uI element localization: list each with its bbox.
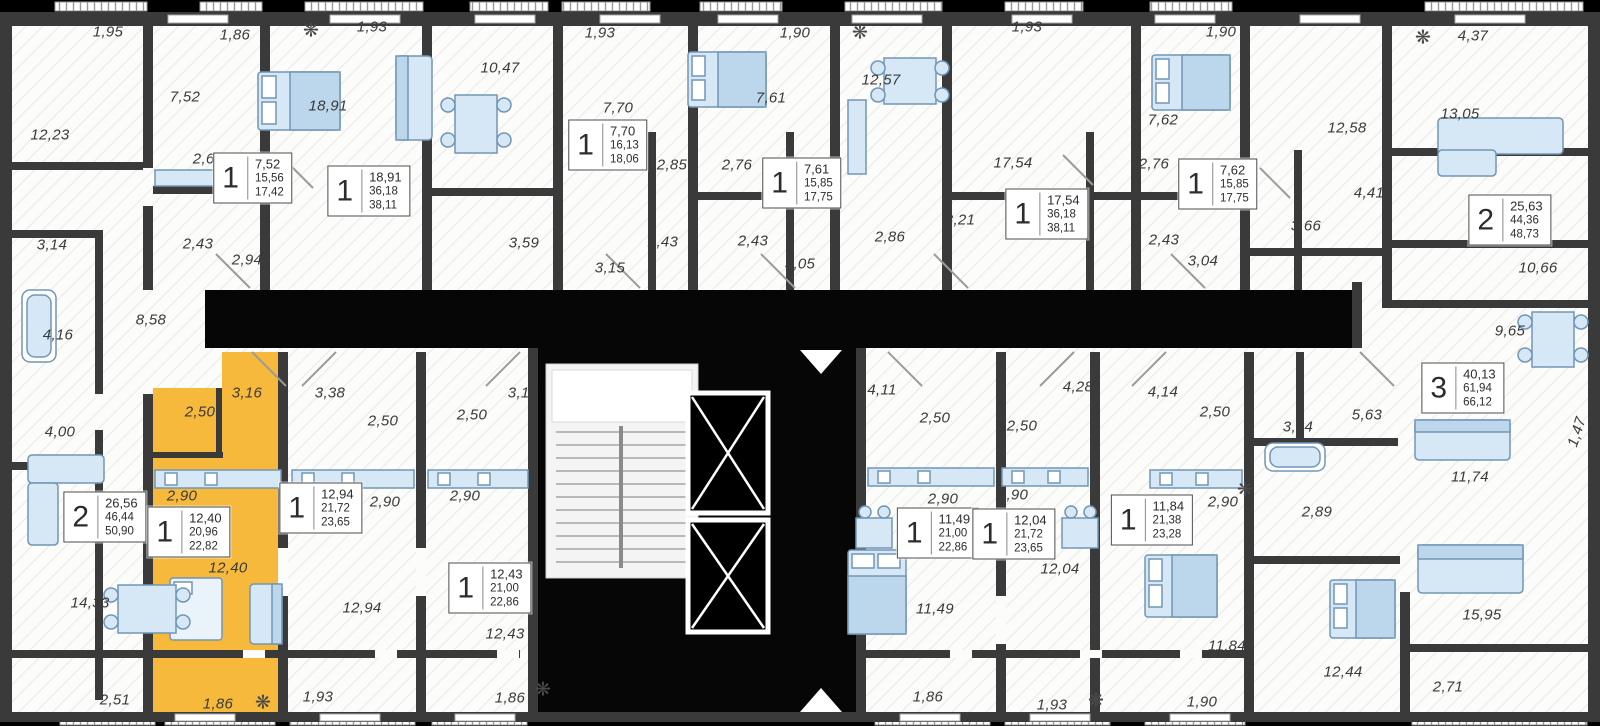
area-value: 48,73 [1510,228,1543,242]
room-area-label: 3,38 [315,385,345,402]
area-value: 11,49 [939,512,971,527]
room-area-label: 4,00 [45,424,75,441]
area-values: 11,8421,3823,28 [1145,499,1185,542]
room-area-label: 2,43 [648,234,678,251]
room-area-label: 12,57 [861,72,900,89]
room-area-label: 4,14 [1148,384,1178,401]
apartment-badge[interactable]: 112,9421,7223,65 [279,483,362,534]
room-area-label: 1,90 [1187,694,1217,711]
room-area-label: 2,43 [183,236,213,253]
room-count: 1 [1014,199,1031,229]
area-value: 36,18 [369,185,402,199]
room-area-label: 11,74 [1451,469,1489,486]
area-values: 7,5215,5617,42 [247,157,284,200]
room-count: 1 [1120,505,1137,535]
area-value: 7,70 [610,124,639,139]
room-area-label: 1,95 [93,24,123,41]
floor-plan: 1,951,861,9310,471,931,901,931,904,377,5… [0,0,1600,726]
room-area-label: 2,85 [657,157,687,174]
room-area-label: 1,86 [203,696,233,713]
room-area-label: 3,04 [1188,253,1218,270]
room-area-label: 2,90 [1208,494,1238,511]
apartment-badge[interactable]: 225,6344,3648,73 [1468,195,1551,246]
area-value: 17,75 [1220,192,1249,206]
room-area-label: 2,90 [998,487,1028,504]
room-area-label: 11,49 [916,601,954,618]
area-value: 15,85 [1220,178,1249,192]
area-value: 16,13 [610,139,639,153]
room-count: 1 [156,517,173,547]
area-value: 20,96 [189,526,222,540]
room-count: 1 [577,130,594,160]
room-count: 2 [72,502,89,532]
room-area-label: 1,93 [1012,19,1042,36]
room-area-label: 10,47 [480,60,519,77]
room-area-label: 2,76 [722,157,752,174]
room-area-label: 1,90 [1206,24,1236,41]
room-area-label: 14,33 [70,595,109,612]
area-value: 17,54 [1047,193,1080,208]
apartment-badge[interactable]: 226,5646,4450,90 [63,492,146,543]
room-count: 1 [1187,169,1204,199]
area-value: 12,04 [1014,513,1047,528]
room-area-label: 5,63 [1352,407,1382,424]
area-value: 12,94 [321,487,354,502]
room-area-label: 2,89 [1302,504,1332,521]
room-area-label: 2,43 [738,233,768,250]
room-area-label: 12,58 [1327,120,1366,137]
room-area-label: 3,64 [1283,419,1313,436]
plant-icon: ❋ [535,679,551,702]
area-value: 22,86 [939,541,971,555]
area-value: 38,11 [1047,222,1080,236]
room-area-label: 2,90 [928,491,958,508]
apartment-badge[interactable]: 17,6215,8517,75 [1178,159,1257,210]
apartment-badge[interactable]: 111,8421,3823,28 [1111,495,1193,546]
area-value: 11,84 [1153,499,1185,514]
room-area-label: 7,70 [603,100,633,117]
area-value: 38,11 [369,199,402,213]
room-area-label: 2,50 [1007,418,1037,435]
plant-icon: ❋ [303,20,319,43]
room-count: 1 [288,493,305,523]
room-area-label: 3,16 [232,385,262,402]
area-value: 17,42 [255,186,284,200]
room-area-label: 3,05 [785,256,815,273]
room-area-label: 2,90 [167,488,197,505]
room-area-label: 3,21 [945,212,975,229]
plant-icon: ❋ [852,22,868,45]
area-value: 7,52 [255,157,284,172]
room-area-label: 3,14 [37,237,67,254]
area-value: 21,00 [939,527,971,541]
area-value: 23,65 [1014,542,1047,556]
area-value: 12,40 [189,511,222,526]
area-value: 21,38 [1153,514,1185,528]
room-count: 1 [771,168,788,198]
room-area-label: 2,71 [1433,679,1463,696]
room-area-label: 4,41 [1354,185,1384,202]
room-area-label: 2,90 [370,494,400,511]
room-area-label: 2,94 [232,252,262,269]
room-count: 2 [1477,205,1494,235]
area-value: 22,86 [490,596,523,610]
room-area-label: 2,90 [450,488,480,505]
apartment-badge-selected[interactable]: 112,4020,9622,82 [147,507,230,558]
area-value: 66,12 [1463,396,1496,410]
area-values: 12,9421,7223,65 [313,487,354,530]
area-value: 18,06 [610,153,639,167]
area-values: 40,1361,9466,12 [1455,367,1496,410]
area-values: 7,7016,1318,06 [602,124,639,167]
area-values: 17,5436,1838,11 [1039,193,1080,236]
room-count: 1 [222,163,239,193]
room-area-label: 3,66 [1291,218,1321,235]
room-area-label: 12,23 [30,127,69,144]
area-values: 18,9136,1838,11 [361,170,402,213]
area-values: 7,6115,8517,75 [796,162,833,205]
area-value: 46,44 [105,511,138,525]
area-value: 21,72 [321,502,354,516]
area-values: 25,6344,3648,73 [1502,199,1543,242]
room-area-label: 4,28 [1063,379,1093,396]
apartment-badge[interactable]: 340,1361,9466,12 [1421,363,1504,414]
plant-icon: ❋ [1237,479,1253,502]
room-area-label: 1,93 [357,19,387,36]
area-value: 44,36 [1510,214,1543,228]
room-area-label: 15,95 [1462,607,1501,624]
area-values: 11,4921,0022,86 [931,512,971,555]
area-value: 7,61 [804,162,833,177]
room-area-label: 1,86 [913,689,943,706]
room-area-label: 12,44 [1323,664,1362,681]
area-value: 25,63 [1510,199,1543,214]
room-area-label: 10,66 [1518,260,1557,277]
room-area-label: 1,93 [1037,697,1067,714]
room-count: 1 [906,518,923,548]
room-area-label: 3,17 [508,385,538,402]
plant-icon: ❋ [255,692,271,715]
room-area-label: 18,91 [308,98,347,115]
area-value: 18,91 [369,170,402,185]
area-value: 22,82 [189,540,222,554]
area-value: 23,28 [1153,528,1185,542]
apartment-badge[interactable]: 17,6115,8517,75 [762,158,841,209]
apartment-badge[interactable]: 17,7016,1318,06 [568,120,647,171]
room-area-label: 7,52 [170,89,200,106]
area-value: 15,85 [804,177,833,191]
room-area-label: 12,94 [342,600,381,617]
room-area-label: 1,93 [303,689,333,706]
apartment-badge[interactable]: 117,5436,1838,11 [1005,189,1088,240]
room-area-label: 2,43 [1149,232,1179,249]
room-count: 1 [336,176,353,206]
room-area-label: 12,04 [1040,561,1079,578]
room-area-label: 4,11 [867,382,896,399]
apartment-badge[interactable]: 111,4921,0022,86 [897,508,979,559]
plant-icon: ❋ [1415,27,1431,50]
area-value: 17,75 [804,191,833,205]
area-value: 21,72 [1014,528,1047,542]
room-area-label: 7,61 [756,90,786,107]
apartment-badge[interactable]: 112,0421,7223,65 [972,509,1055,560]
room-area-label: 11,84 [1208,638,1246,655]
area-value: 12,43 [490,567,523,582]
room-area-label: 1,47 [1564,415,1590,449]
area-value: 26,56 [105,496,138,511]
apartment-badge[interactable]: 112,4321,0022,86 [448,563,531,614]
room-area-label: 12,43 [485,626,524,643]
room-area-label: 2,76 [1139,156,1169,173]
room-area-label: 2,86 [875,229,905,246]
room-area-label: 2,50 [457,407,487,424]
area-value: 50,90 [105,525,138,539]
area-value: 61,94 [1463,382,1496,396]
room-area-label: 4,37 [1458,28,1488,45]
room-area-label: 3,59 [509,235,539,252]
room-count: 3 [1430,373,1447,403]
area-value: 21,00 [490,582,523,596]
area-values: 12,4020,9622,82 [181,511,222,554]
area-values: 26,5646,4450,90 [97,496,138,539]
area-values: 12,0421,7223,65 [1006,513,1047,556]
area-values: 7,6215,8517,75 [1212,163,1249,206]
room-area-label: 8,58 [136,312,166,329]
area-value: 40,13 [1463,367,1496,382]
area-value: 23,65 [321,516,354,530]
room-area-label: 1,90 [780,25,810,42]
room-count: 1 [981,519,998,549]
apartment-badge[interactable]: 118,9136,1838,11 [327,166,410,217]
room-area-label: 3,15 [595,260,625,277]
room-area-label: 1,93 [585,25,615,42]
room-area-label: 2,50 [368,413,398,430]
room-area-label: 2,50 [185,404,215,421]
room-area-label: 17,54 [993,155,1032,172]
area-value: 36,18 [1047,208,1080,222]
room-area-label: 2,50 [920,410,950,427]
room-area-label: 4,16 [43,327,73,344]
area-value: 15,56 [255,172,284,186]
room-area-label: 2,51 [100,692,130,709]
room-area-label: 9,65 [1495,323,1525,340]
room-area-label: 13,05 [1440,106,1479,123]
area-value: 7,62 [1220,163,1249,178]
labels-layer: 1,951,861,9310,471,931,901,931,904,377,5… [0,0,1600,726]
room-area-label: 1,86 [495,690,525,707]
room-area-label: 2,50 [1200,404,1230,421]
room-area-label: 12,40 [208,560,247,577]
room-area-label: 1,86 [220,27,250,44]
plant-icon: ❋ [1088,690,1104,713]
area-values: 12,4321,0022,86 [482,567,523,610]
apartment-badge[interactable]: 17,5215,5617,42 [213,153,292,204]
room-area-label: 7,62 [1148,112,1178,129]
room-count: 1 [457,573,474,603]
